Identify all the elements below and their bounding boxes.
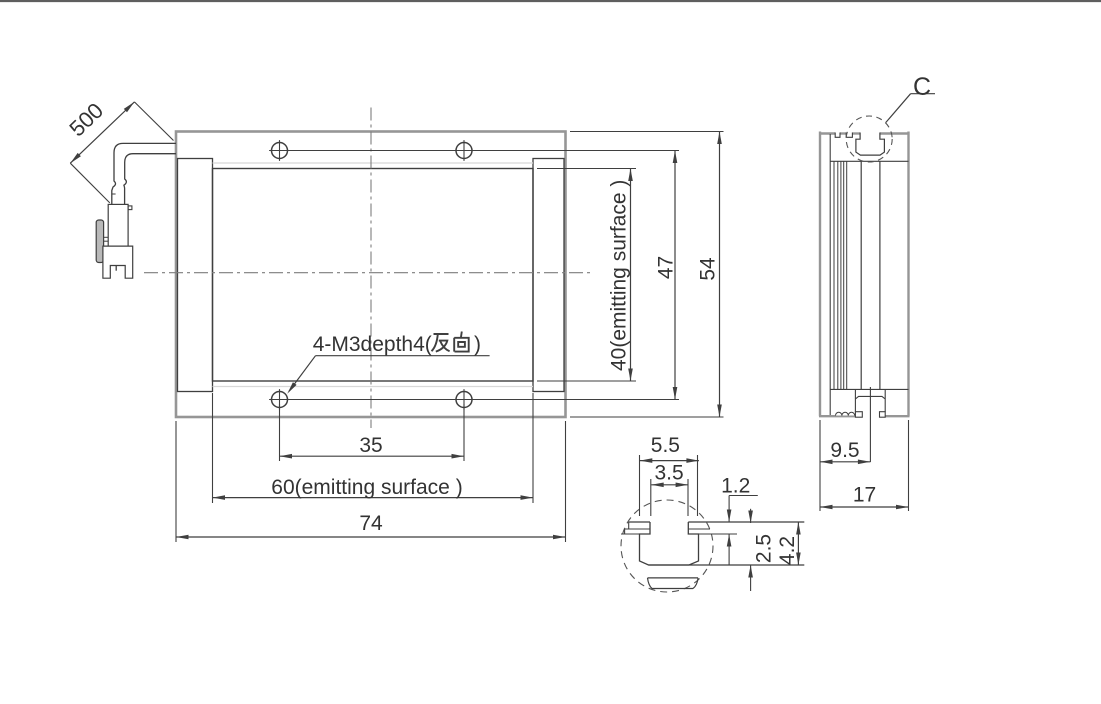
svg-text:40(emitting surface ): 40(emitting surface ): [608, 180, 631, 371]
svg-text:4.2: 4.2: [776, 536, 799, 565]
svg-text:74: 74: [359, 512, 383, 535]
svg-text:4-M3depth4(: 4-M3depth4(: [313, 333, 432, 356]
svg-text:9.5: 9.5: [830, 439, 859, 462]
svg-text:): ): [474, 333, 481, 356]
svg-text:3.5: 3.5: [654, 461, 683, 484]
svg-text:5.5: 5.5: [651, 434, 680, 457]
svg-text:60(emitting surface ): 60(emitting surface ): [271, 476, 462, 499]
svg-text:1.2: 1.2: [721, 475, 750, 498]
svg-text:17: 17: [853, 484, 876, 507]
svg-text:2.5: 2.5: [753, 534, 776, 563]
svg-text:54: 54: [697, 257, 720, 281]
svg-text:35: 35: [359, 434, 382, 457]
svg-text:47: 47: [655, 256, 678, 279]
svg-text:500: 500: [64, 98, 108, 141]
svg-text:C: C: [913, 73, 931, 101]
